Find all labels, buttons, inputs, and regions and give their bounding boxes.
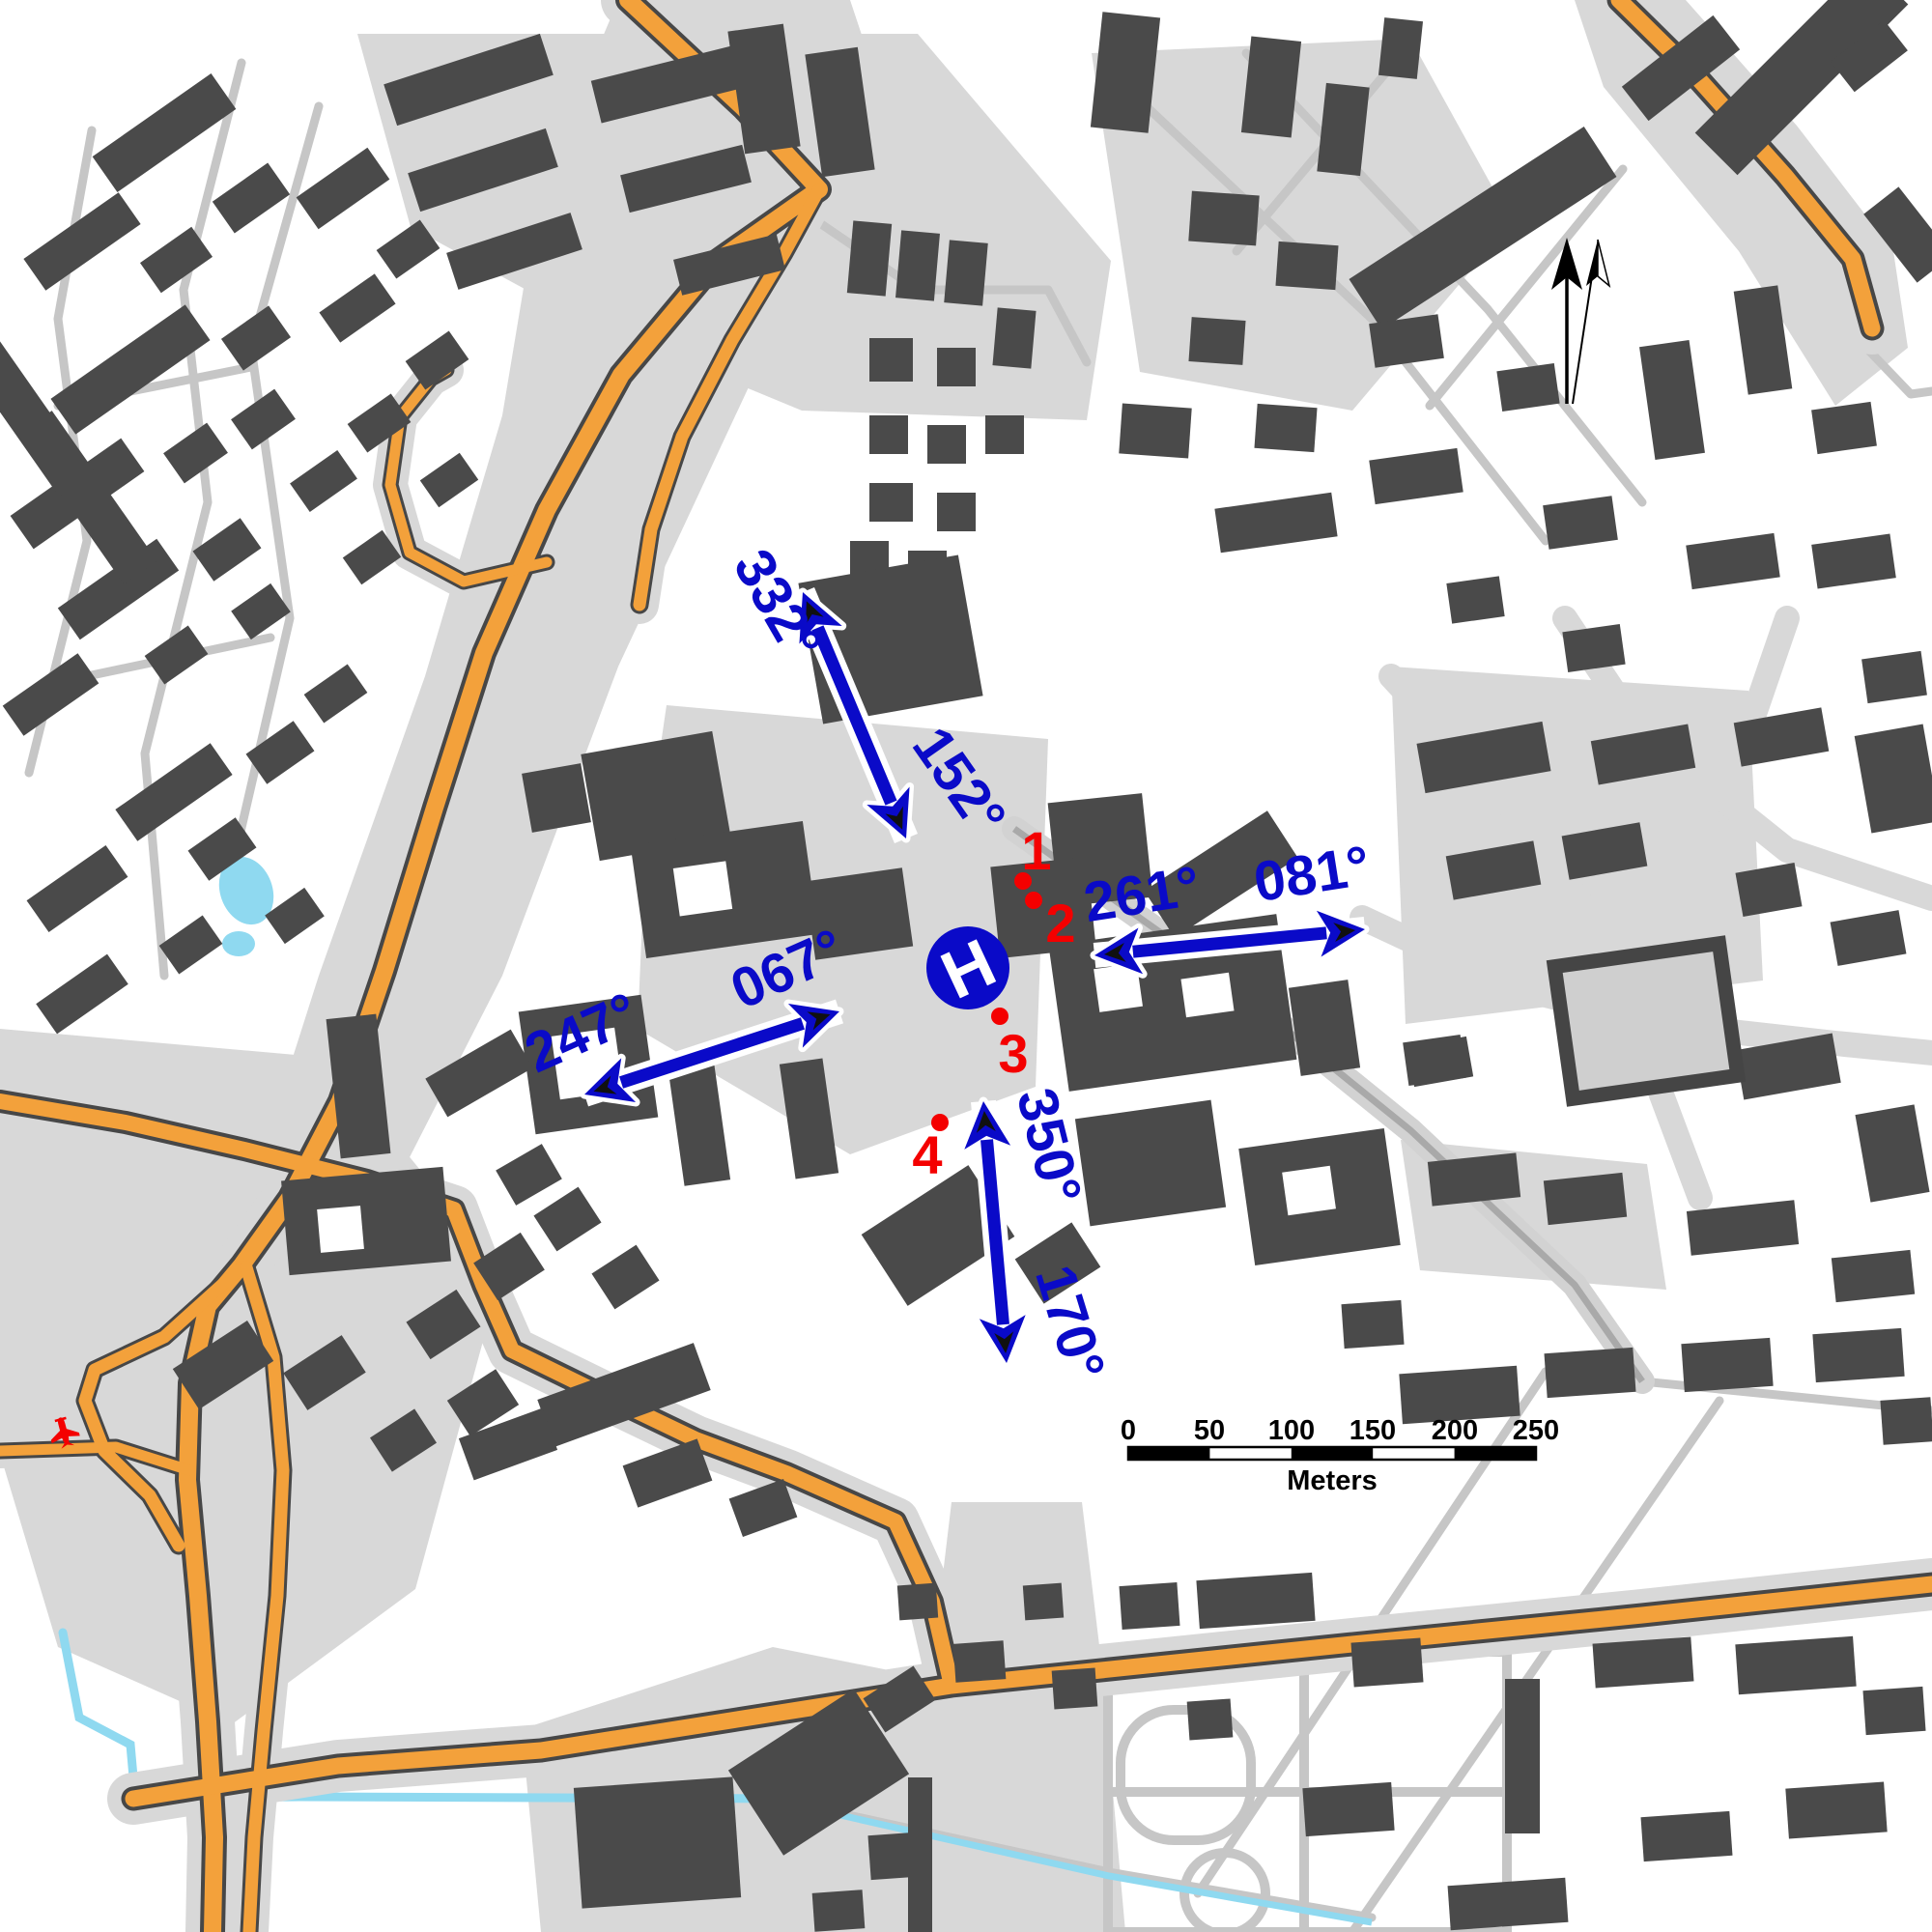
building (1214, 493, 1337, 554)
building (115, 743, 232, 841)
building (1448, 1878, 1569, 1930)
building (304, 664, 368, 723)
point-label-1: 1 (1021, 820, 1051, 881)
building (1545, 1348, 1636, 1398)
building (927, 425, 966, 464)
building (1369, 448, 1463, 504)
bearing-label-170: 170° (1023, 1258, 1117, 1387)
building (1812, 1328, 1904, 1382)
scale-tick-50: 50 (1194, 1415, 1225, 1446)
building (1544, 1173, 1627, 1225)
building (1811, 534, 1896, 589)
building (937, 493, 976, 531)
building (50, 304, 210, 434)
bearing-label-350: 350° (1005, 1082, 1094, 1209)
building (937, 348, 976, 386)
building (869, 415, 908, 454)
building-ring (1554, 944, 1738, 1099)
building (36, 954, 128, 1035)
building (1862, 1687, 1925, 1735)
building (1880, 1397, 1932, 1445)
building (1119, 404, 1191, 459)
building (591, 1245, 659, 1310)
building (908, 1777, 932, 1932)
building (1302, 1782, 1394, 1836)
building (213, 163, 290, 234)
scale-tick-100: 100 (1268, 1415, 1315, 1446)
building (1350, 1638, 1423, 1688)
building (140, 227, 213, 293)
building (985, 415, 1024, 454)
point-label-3: 3 (998, 1023, 1028, 1084)
building (574, 1776, 741, 1908)
building (1275, 241, 1338, 290)
building (1861, 651, 1927, 703)
building (1187, 1698, 1234, 1740)
building (231, 389, 296, 450)
building (895, 230, 940, 300)
building (1735, 1636, 1856, 1694)
building (533, 1187, 601, 1252)
building (1196, 1573, 1315, 1629)
building (1832, 1250, 1915, 1302)
building (1075, 1100, 1226, 1227)
building (265, 888, 325, 944)
building (1681, 1338, 1773, 1392)
building (420, 453, 478, 508)
building (1188, 317, 1245, 365)
scale-tick-200: 200 (1432, 1415, 1478, 1446)
building (1120, 1582, 1180, 1630)
building (1855, 1104, 1929, 1202)
building (1641, 1811, 1733, 1861)
building (159, 915, 223, 974)
building (1188, 191, 1259, 246)
building (1317, 83, 1369, 176)
building (1811, 402, 1877, 454)
building (1091, 12, 1160, 133)
building (953, 1640, 1007, 1683)
building (496, 1144, 562, 1206)
scale-bar: 0 50 100 150 200 250 Meters (1121, 1415, 1559, 1496)
building (1785, 1782, 1887, 1839)
building (1428, 1152, 1520, 1206)
point-label-4: 4 (912, 1124, 942, 1185)
building (3, 653, 99, 736)
building (1831, 910, 1907, 966)
point-dot-2 (1025, 892, 1042, 909)
building (1686, 533, 1780, 589)
building (297, 148, 390, 229)
building (1403, 1035, 1466, 1086)
building (1855, 724, 1932, 834)
scale-unit-label: Meters (1287, 1465, 1378, 1496)
building (1378, 17, 1423, 79)
building (944, 240, 988, 305)
north-arrow-icon (1551, 238, 1609, 404)
building (163, 423, 228, 484)
building (1241, 37, 1301, 138)
point-label-2: 2 (1045, 893, 1075, 953)
building (1543, 496, 1618, 550)
building (869, 338, 913, 382)
building (1505, 1679, 1540, 1833)
building (522, 763, 591, 833)
scale-tick-150: 150 (1350, 1415, 1396, 1446)
building (812, 1889, 866, 1932)
building (1254, 404, 1317, 452)
building (319, 273, 395, 342)
building (1639, 340, 1705, 460)
building (1446, 576, 1504, 623)
scale-tick-0: 0 (1121, 1415, 1136, 1446)
building (27, 845, 128, 932)
building (1052, 1667, 1098, 1709)
scale-tick-250: 250 (1513, 1415, 1559, 1446)
building (290, 450, 357, 512)
map-canvas: 332° 152° 261° 081° 247° 067° 350° 170° … (0, 0, 1932, 1932)
building (1562, 624, 1625, 672)
building (897, 1583, 938, 1621)
building (281, 1167, 451, 1275)
building (145, 625, 209, 684)
building (1023, 1583, 1064, 1621)
building (221, 305, 291, 370)
building (668, 1065, 730, 1186)
building (1593, 1636, 1694, 1688)
building (1496, 363, 1559, 412)
building (847, 220, 892, 296)
building (1289, 980, 1360, 1076)
building (1341, 1300, 1404, 1349)
building (869, 483, 913, 522)
city-map: 332° 152° 261° 081° 247° 067° 350° 170° … (0, 0, 1932, 1932)
building (992, 307, 1036, 368)
